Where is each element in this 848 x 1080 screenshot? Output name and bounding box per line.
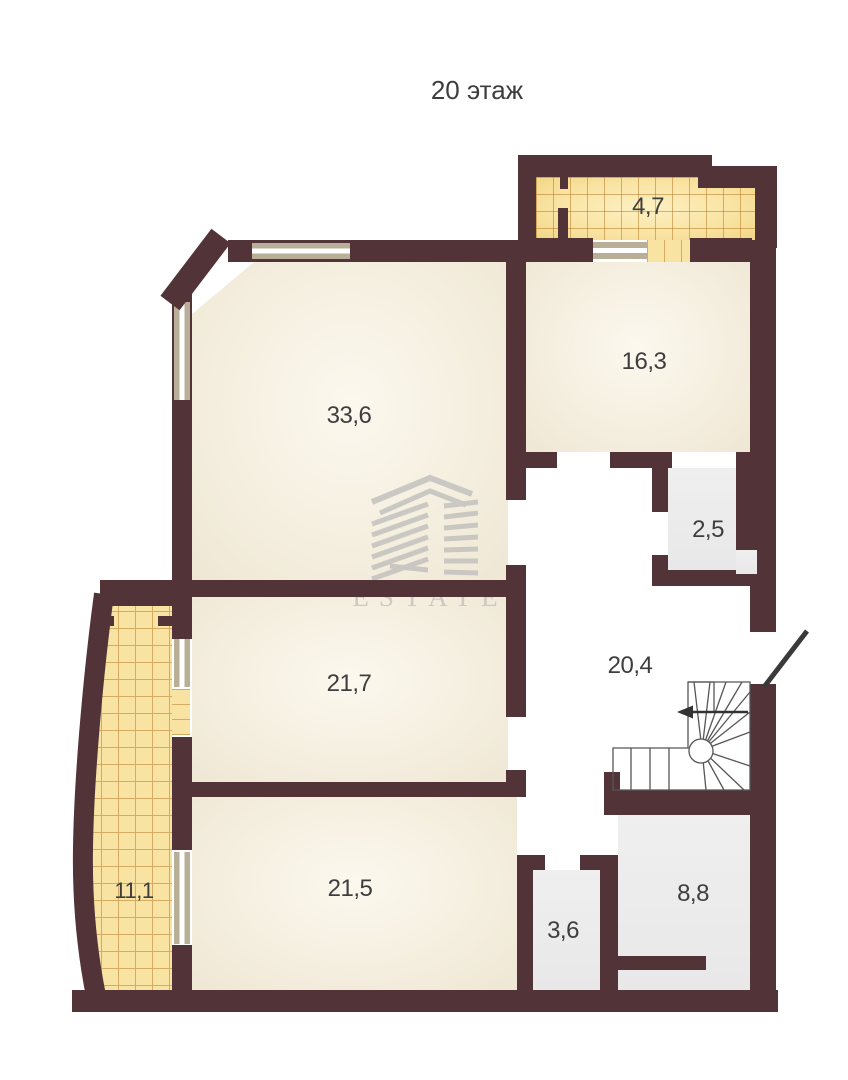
area-label-4-7: 4,7 <box>632 193 664 221</box>
area-label-21-7: 21,7 <box>327 670 372 698</box>
wall-chamfer <box>170 236 221 303</box>
staircase <box>613 682 750 790</box>
floor-plan: ESTATE <box>0 0 848 1080</box>
area-label-21-5: 21,5 <box>328 875 373 903</box>
area-label-11-1: 11,1 <box>114 878 153 904</box>
area-label-3-6: 3,6 <box>547 917 579 945</box>
area-label-20-4: 20,4 <box>608 652 653 680</box>
floor-title: 20 этаж <box>431 75 523 106</box>
area-label-33-6: 33,6 <box>327 402 372 430</box>
area-label-16-3: 16,3 <box>622 348 667 376</box>
area-label-8-8: 8,8 <box>677 880 709 908</box>
entrance-door-swing <box>764 631 807 687</box>
area-label-2-5: 2,5 <box>692 516 724 544</box>
